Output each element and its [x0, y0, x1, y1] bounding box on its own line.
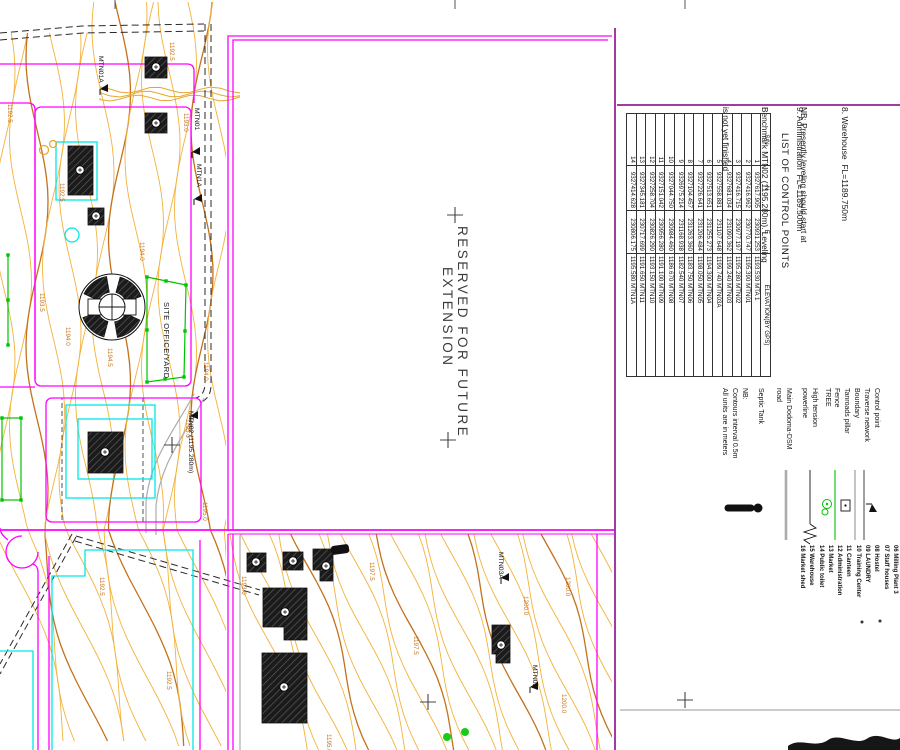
legend-item-traverse-network: Traverse network: [863, 388, 870, 442]
table-row: 29327416.962230770.7471195.390 MTN01: [742, 114, 752, 377]
table-row: 139327345.181230717.6991191.650 MTN11: [636, 114, 646, 377]
legend-item-tanroads-pillar: Tanroads pillar: [843, 388, 850, 434]
table-cell: 9327416.715: [732, 166, 742, 211]
building-list-item: 08 Hostel: [873, 545, 879, 572]
legend-note-line: All units are in meters: [721, 388, 728, 455]
map-annotations: 1192.51192.51193.01193.51194.01194.51194…: [6, 42, 693, 750]
control-point-flag-icon: [100, 84, 108, 92]
drain-channel: [100, 87, 240, 101]
contour-label: 1192.5: [58, 183, 65, 202]
table-cell: 230806.175: [627, 211, 637, 254]
table-row: 109327044.750230984.4601186.670 MTN08: [665, 114, 675, 377]
grid-cross-icon: [164, 437, 180, 453]
table-cell: 230717.699: [636, 211, 646, 254]
plot-boundaries: [0, 36, 614, 750]
table-cell: 1191.100 MTN09: [655, 254, 665, 377]
column-header: E: [761, 211, 771, 254]
table-cell: 9327513.651: [703, 166, 713, 211]
table-cell: 1186.670 MTN08: [665, 254, 675, 377]
table-cell: 4: [723, 114, 733, 166]
building-list-item: 09 LAUNDRY: [864, 545, 870, 582]
legend-note-line: NB:: [741, 388, 748, 400]
contour-label: 1194.0: [138, 242, 145, 261]
table-cell: 231107.648: [713, 211, 723, 254]
table-cell: 14: [627, 114, 637, 166]
control-point-symbol-icon: [866, 504, 877, 512]
column-header: S/N: [761, 114, 771, 166]
contour-label: 1200.0: [522, 596, 529, 616]
table-row: 99326975.214231168.9381182.540 MTN07: [675, 114, 685, 377]
road-centerlines: [0, 24, 260, 674]
contour-label: 1195.0: [325, 734, 332, 750]
table-cell: 7: [694, 114, 704, 166]
table-row: 69327513.651231255.2731194.300 MTN04: [703, 114, 713, 377]
contour-label: 1193.0: [240, 576, 247, 595]
tree-symbol-icon: [822, 500, 832, 516]
table-cell: 230770.747: [742, 211, 752, 254]
table-cell: 9327151.042: [655, 166, 665, 211]
table-cell: 1191.650 MTN11: [636, 254, 646, 377]
table-cell: 1199.740 MTN03A: [713, 254, 723, 377]
contour-label: 1194.5: [106, 348, 113, 367]
leveling-note-line: NB: Presently leveling should start at: [797, 107, 810, 263]
table-cell: 8: [684, 114, 694, 166]
legend-item-boundary: Boundary: [853, 388, 860, 418]
point-label: MTN01: [193, 108, 200, 131]
contour-label: 1192.5: [165, 671, 172, 690]
table-cell: 1195.580 MTN1A: [627, 254, 637, 377]
legend-item-tree: TREE: [824, 388, 831, 407]
legend-item-main-road: road: [775, 388, 782, 402]
contour-label: 1193.0: [182, 113, 189, 132]
table-row: 149327414.628230806.1751195.580 MTN1A: [627, 114, 637, 377]
contour-line: [518, 534, 596, 750]
table-cell: 230826.290: [646, 211, 656, 254]
table-cell: 230977.197: [732, 211, 742, 254]
table-cell: 1195.390 MTN01: [742, 254, 752, 377]
table-cell: 9326975.214: [675, 166, 685, 211]
contour-line: [418, 534, 496, 750]
table-row: 89327104.457231263.3601183.750 MTN06: [684, 114, 694, 377]
building-list-item: 13 Market: [827, 545, 833, 573]
fl-note-line: 8. Warehouse FL=1189.750m: [837, 107, 852, 231]
column-header: N: [761, 166, 771, 211]
contour-label: 1192.5: [168, 42, 175, 61]
building-list-item: 15 Warehouse: [808, 545, 814, 585]
contour-label: 1192.5: [98, 577, 105, 596]
column-header: ELEVATION(BY GPS): [761, 254, 771, 377]
table-cell: 3: [732, 114, 742, 166]
table-cell: 9327258.704: [646, 166, 656, 211]
area-label: SITE OFFICE/YARD: [162, 302, 171, 379]
contour-line: [391, 534, 469, 750]
table-cell: 1183.750 MTN06: [684, 254, 694, 377]
contour-line: [59, 33, 124, 741]
tanroads-pillar-symbol-icon: [841, 500, 850, 511]
grid-cross-icon: [447, 207, 463, 223]
contour-label: 1200.0: [560, 694, 567, 714]
table-cell: 9: [675, 114, 685, 166]
legend-item-fence: Fence: [833, 388, 840, 407]
reserved-area-label: RESERVED FOR FUTURE: [455, 226, 470, 438]
contour-lines: [0, 2, 694, 750]
building-list-item: 16 Market shed: [799, 545, 805, 588]
contour-line: [341, 534, 419, 750]
table-cell: 1198.050 MTN05: [694, 254, 704, 377]
control-points-title: LIST OF CONTROL POINTS: [779, 133, 790, 269]
contour-line: [523, 534, 600, 750]
contour-line: [425, 534, 502, 750]
table-header-row: S/NNEELEVATION(BY GPS): [761, 114, 771, 377]
table-row: 49327681.034231090.3621199.240 MTN03: [723, 114, 733, 377]
septic-tank-symbol-icon: [728, 504, 763, 513]
table-cell: 1199.240 MTN03: [723, 254, 733, 377]
grid-cross-icon: [420, 694, 436, 710]
table-cell: 13: [636, 114, 646, 166]
table-cell: 231168.938: [675, 211, 685, 254]
legend-item-control-point: Control point: [873, 388, 880, 428]
contour-label: 1197.5: [412, 636, 419, 655]
building-footprints: [68, 57, 510, 723]
table-cell: 6: [703, 114, 713, 166]
building-list-item: 11 Canteen: [846, 545, 852, 577]
table-cell: 9327414.628: [627, 166, 637, 211]
grid-cross-icon: [440, 432, 456, 448]
table-cell: 9327345.181: [636, 166, 646, 211]
table-cell: 10: [665, 114, 675, 166]
vehicle-mark: [331, 544, 350, 555]
legend-item-main-road: Main Dodoma-DSM: [785, 388, 792, 449]
table-cell: 230931.253: [751, 211, 761, 254]
contour-label: 1195.0: [201, 502, 208, 521]
table-cell: 1182.540 MTN07: [675, 254, 685, 377]
table-row: 129327258.704230826.2901193.150 MTN10: [646, 114, 656, 377]
legend-item-high-tension-powerline: High tension: [811, 388, 818, 427]
legend-item-high-tension-powerline: powerline: [801, 388, 808, 418]
table-row: 79327226.641231206.4841198.050 MTN05: [694, 114, 704, 377]
table-cell: 231206.484: [694, 211, 704, 254]
point-label: MTN1A: [195, 164, 202, 188]
table-row: 59327558.881231107.6481199.740 MTN03A: [713, 114, 723, 377]
building-list-item: 06 Milling Plant 3: [892, 545, 898, 594]
table-cell: 1193.150 MTN10: [646, 254, 656, 377]
building-list-item: 14 Public toilet: [818, 545, 824, 587]
table-cell: 9327416.962: [742, 166, 752, 211]
point-label: MTN03A: [497, 552, 504, 579]
table-row: 119327151.042230956.2801191.100 MTN09: [655, 114, 665, 377]
table-cell: 231263.360: [684, 211, 694, 254]
building-list-item: 12 Administration: [836, 545, 842, 595]
table-cell: 1: [751, 114, 761, 166]
building-list-item: 07 Staff houses: [883, 545, 889, 589]
table-cell: 9327617.905: [751, 166, 761, 211]
drawing-sheet: 1192.51192.51193.01193.51194.01194.51194…: [0, 0, 900, 750]
contour-line: [328, 534, 405, 750]
control-points-table: S/NNEELEVATION(BY GPS) 19327617.90523093…: [626, 113, 771, 377]
building-list-item: 10 Training Center: [855, 545, 861, 597]
contour-label: 1192.5: [6, 104, 13, 123]
table-cell: 9327558.881: [713, 166, 723, 211]
contour-line: [191, 2, 260, 746]
control-point-flag-icon: [194, 194, 202, 202]
contour-label: 1197.5: [368, 562, 375, 581]
table-row: 19327617.905230931.2531193.530 MTA 1: [751, 114, 761, 377]
reserved-area-label: EXTENSION: [440, 267, 455, 368]
table-cell: 231255.273: [703, 211, 713, 254]
legend-note-line: Contours interval 0.5m: [731, 388, 738, 458]
table-cell: 230956.280: [655, 211, 665, 254]
contour-label: 1200.0: [564, 577, 571, 597]
table-row: 39327416.715230977.1971195.280 MTN02: [732, 114, 742, 377]
table-cell: 231090.362: [723, 211, 733, 254]
table-cell: 1195.280 MTN02: [732, 254, 742, 377]
contour-line: [541, 534, 619, 750]
table-cell: 12: [646, 114, 656, 166]
table-cell: 9327226.641: [694, 166, 704, 211]
legend-item-septic-tank: Septic Tank: [757, 388, 764, 424]
table-cell: 9327104.457: [684, 166, 694, 211]
high-tension-powerline-symbol-icon: [804, 470, 816, 544]
table-cell: 5: [713, 114, 723, 166]
contour-label: 1193.5: [38, 293, 45, 312]
roundabout: [79, 274, 145, 340]
right-panel: 8. Warehouse FL=1189.750m 9. Administrat…: [620, 95, 900, 750]
table-cell: 11: [655, 114, 665, 166]
table-cell: 1194.300 MTN04: [703, 254, 713, 377]
table-cell: 9327044.750: [665, 166, 675, 211]
table-cell: 9327681.034: [723, 166, 733, 211]
contour-line: [474, 534, 551, 750]
table-cell: 230984.460: [665, 211, 675, 254]
point-label: MTN01A: [97, 56, 104, 83]
contour-label: 1194.0: [202, 362, 209, 381]
table-cell: 2: [742, 114, 752, 166]
table-cell: 1193.530 MTA 1: [751, 254, 761, 377]
contour-label: 1194.0: [64, 327, 71, 346]
contour-line: [208, 2, 293, 746]
